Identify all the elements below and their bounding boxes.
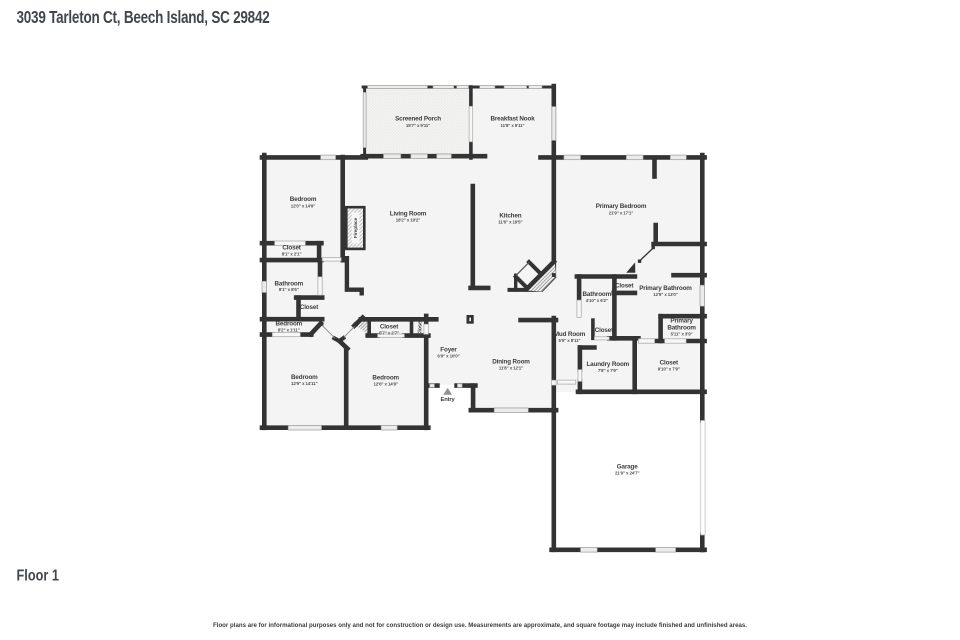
- svg-text:Bedroom: Bedroom: [291, 374, 318, 381]
- svg-text:Kitchen: Kitchen: [499, 212, 521, 219]
- svg-text:8'2" x 1'11": 8'2" x 1'11": [278, 327, 300, 332]
- svg-text:Primary Bedroom: Primary Bedroom: [596, 203, 647, 210]
- svg-text:Breakfast Nook: Breakfast Nook: [490, 116, 535, 123]
- svg-text:Closet: Closet: [660, 360, 679, 367]
- svg-text:12'9" x 13'0": 12'9" x 13'0": [653, 292, 678, 297]
- svg-text:18'2" x 19'2": 18'2" x 19'2": [396, 218, 421, 223]
- svg-text:21'9" x 24'7": 21'9" x 24'7": [615, 470, 640, 475]
- svg-text:Bedroom: Bedroom: [290, 196, 317, 203]
- svg-text:Entry: Entry: [441, 397, 456, 403]
- svg-text:11'6" x 19'5": 11'6" x 19'5": [498, 220, 522, 225]
- svg-text:Floor 1: Floor 1: [17, 568, 60, 585]
- svg-text:Closet: Closet: [615, 282, 634, 289]
- svg-text:5'5" x 8'11": 5'5" x 8'11": [559, 338, 581, 343]
- svg-text:21'9" x 17'1": 21'9" x 17'1": [609, 210, 634, 215]
- svg-text:9'10" x 7'9": 9'10" x 7'9": [658, 367, 680, 372]
- svg-text:8'1" x 8'6": 8'1" x 8'6": [279, 287, 299, 292]
- svg-text:Bathroom: Bathroom: [667, 325, 696, 332]
- svg-text:3039 Tarleton Ct, Beech Island: 3039 Tarleton Ct, Beech Island, SC 29842: [17, 7, 270, 27]
- svg-text:Closet: Closet: [300, 304, 319, 311]
- svg-text:Floor plans are for informatio: Floor plans are for informational purpos…: [213, 622, 747, 629]
- svg-text:8'1" x 2'1": 8'1" x 2'1": [282, 251, 302, 256]
- svg-text:12'0" x 14'9": 12'0" x 14'9": [291, 203, 316, 208]
- svg-text:Mud Room: Mud Room: [554, 331, 586, 338]
- svg-text:Primary: Primary: [670, 318, 693, 325]
- svg-text:5'11" x 3'9": 5'11" x 3'9": [671, 332, 693, 337]
- svg-text:Laundry Room: Laundry Room: [586, 361, 629, 368]
- svg-text:11'8" x 12'1": 11'8" x 12'1": [499, 365, 523, 370]
- svg-text:Closet: Closet: [595, 327, 614, 334]
- svg-text:5'7" x 2'7": 5'7" x 2'7": [379, 330, 399, 335]
- svg-text:7'8" x 7'9": 7'8" x 7'9": [598, 368, 618, 373]
- svg-text:Bedroom: Bedroom: [372, 375, 399, 382]
- svg-text:15'7" x 9'11": 15'7" x 9'11": [406, 123, 430, 128]
- svg-text:12'9" x 14'11": 12'9" x 14'11": [291, 381, 318, 386]
- svg-text:Screened Porch: Screened Porch: [395, 116, 441, 123]
- svg-text:Fireplace: Fireplace: [353, 217, 359, 238]
- svg-text:Bathroom: Bathroom: [583, 291, 612, 298]
- svg-text:6'9" x 10'0": 6'9" x 10'0": [437, 353, 459, 358]
- svg-text:11'8" x 9'11": 11'8" x 9'11": [501, 123, 525, 128]
- svg-text:Closet: Closet: [418, 319, 424, 336]
- svg-text:Garage: Garage: [617, 463, 638, 470]
- svg-text:4'10" x 6'2": 4'10" x 6'2": [586, 298, 608, 303]
- svg-text:12'6" x 14'9": 12'6" x 14'9": [373, 382, 398, 387]
- svg-text:Living Room: Living Room: [390, 210, 427, 217]
